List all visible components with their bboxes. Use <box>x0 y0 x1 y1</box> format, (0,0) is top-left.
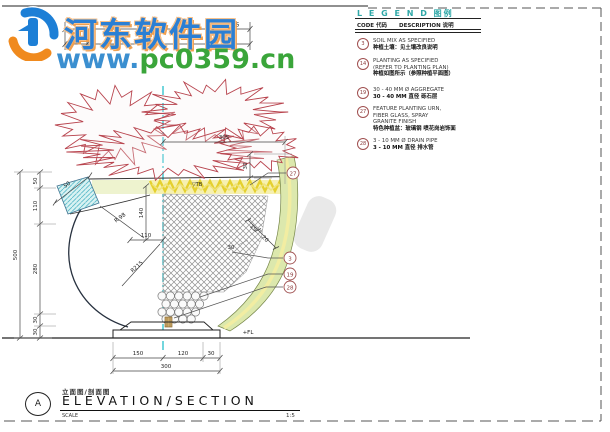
scale-value: 1:5 <box>286 413 295 419</box>
aggregate-stone <box>170 300 178 308</box>
legend-item-line: 种植土壤：见土壤改良说明 <box>373 45 438 52</box>
watermark: 河东软件园 www.pc0359.cn <box>0 0 300 90</box>
legend-item-text: SOIL MIX AS SPECIFIED种植土壤：见土壤改良说明 <box>373 38 438 51</box>
dim-radius-outer: R215 <box>130 260 145 274</box>
aggregate-stone <box>196 300 204 308</box>
legend-item-code: 3 <box>357 38 369 50</box>
dim-soil-depth: 140 <box>139 207 145 218</box>
legend-item-line: FIBER GLASS, SPRAY <box>373 113 456 120</box>
legend-item-code: 28 <box>357 138 369 150</box>
level-floor: +FL <box>243 330 255 336</box>
legend-item-line: PLANTING AS SPECIFIED <box>373 58 454 65</box>
legend-item-line: 30 - 40 MM Ø AGGREGATE <box>373 87 444 94</box>
legend-item: 3SOIL MIX AS SPECIFIED种植土壤：见土壤改良说明 <box>357 38 438 51</box>
legend-item: 1930 - 40 MM Ø AGGREGATE30 - 40 MM 直径 砾石… <box>357 87 444 100</box>
callout-19: 19 <box>287 273 294 279</box>
scale-label: SCALE <box>62 413 78 419</box>
detail-reference-bubble: A <box>25 392 51 416</box>
dim-left-4: 30 <box>33 316 39 323</box>
callout-28: 28 <box>287 286 294 292</box>
dim-left-total: 500 <box>13 249 19 260</box>
legend-item-line: 特色种植盆：玻璃钢 喷花岗岩饰面 <box>373 126 456 133</box>
title-block: A 立面图/剖面图 ELEVATION/SECTION SCALE 1:5 <box>0 384 360 428</box>
legend-rule <box>355 18 481 19</box>
dim-base-1: 150 <box>133 351 144 357</box>
legend-item-line: 3 - 10 MM Ø DRAIN PIPE <box>373 138 438 145</box>
dim-left-5: 30 <box>33 328 39 335</box>
watermark-url-www: www. <box>56 44 139 75</box>
drawing-title: ELEVATION/SECTION <box>62 393 258 408</box>
legend-header: CODE 代码 DESCRIPTION 说明 <box>357 21 481 29</box>
watermark-url-domain: pc0359.cn <box>139 44 295 75</box>
urn-outline <box>69 195 150 327</box>
legend-item-code: 14 <box>357 58 369 70</box>
legend-item-text: 3 - 10 MM Ø DRAIN PIPE3 - 10 MM 直径 排水管 <box>373 138 438 151</box>
dim-wall-3: 30 <box>228 245 235 251</box>
dim-rim-drop: 30 <box>243 162 249 169</box>
callout-27: 27 <box>290 172 297 178</box>
aggregate-stone <box>158 292 166 300</box>
legend-rule <box>355 29 481 30</box>
legend-item: 283 - 10 MM Ø DRAIN PIPE3 - 10 MM 直径 排水管 <box>357 138 438 151</box>
legend-item-code: 19 <box>357 87 369 99</box>
detail-letter: A <box>35 399 41 409</box>
legend-item-line: 30 - 40 MM 直径 砾石层 <box>373 94 444 101</box>
dim-base-total: 300 <box>161 364 172 370</box>
title-underline <box>60 410 300 411</box>
legend-col-description: DESCRIPTION 说明 <box>399 21 454 29</box>
aggregate-stone <box>175 292 183 300</box>
aggregate-stone <box>187 300 195 308</box>
legend-item-code: 27 <box>357 106 369 118</box>
legend-item: 27FEATURE PLANTING URN,FIBER GLASS, SPRA… <box>357 106 456 132</box>
legend-item-line: GRANITE FINISH <box>373 119 456 126</box>
dim-radius-inner: R 98 <box>114 212 128 225</box>
legend-item-text: 30 - 40 MM Ø AGGREGATE30 - 40 MM 直径 砾石层 <box>373 87 444 100</box>
soil-mix-hatch <box>163 194 268 292</box>
dim-base-2: 120 <box>178 351 189 357</box>
dim-spread: 305 <box>219 135 230 141</box>
callout-3: 3 <box>288 257 292 263</box>
legend-item-text: FEATURE PLANTING URN,FIBER GLASS, SPRAYG… <box>373 106 456 132</box>
aggregate-stone <box>183 292 191 300</box>
aggregate-stone <box>162 300 170 308</box>
aggregate-stone <box>179 300 187 308</box>
dim-soil-width: 110 <box>141 233 152 239</box>
legend-item-line: 种植如图所示（参照种植平面图） <box>373 71 454 78</box>
dim-left-1: 50 <box>33 177 39 184</box>
dim-wall-2: 20 <box>260 235 270 245</box>
dim-left-3: 280 <box>33 263 39 274</box>
legend-item-line: 3 - 10 MM 直径 排水管 <box>373 145 438 152</box>
watermark-url: www.pc0359.cn <box>56 44 295 75</box>
legend-item-text: PLANTING AS SPECIFIED(REFER TO PLANTING … <box>373 58 454 78</box>
legend-item-line: SOIL MIX AS SPECIFIED <box>373 38 438 45</box>
dim-base-3: 30 <box>208 351 215 357</box>
dim-left-2: 110 <box>33 200 39 211</box>
level-top-of-soil: ▽TB <box>192 182 203 188</box>
aggregate-stone <box>192 292 200 300</box>
legend-item: 14PLANTING AS SPECIFIED(REFER TO PLANTIN… <box>357 58 454 78</box>
legend-rule <box>355 32 481 33</box>
legend-item-line: FEATURE PLANTING URN, <box>373 106 456 113</box>
plant-foliage <box>55 80 298 181</box>
legend-panel: L E G E N D 图例 CODE 代码 DESCRIPTION 说明 3S… <box>355 6 483 176</box>
aggregate-stone <box>166 292 174 300</box>
watermark-logo <box>5 5 61 61</box>
